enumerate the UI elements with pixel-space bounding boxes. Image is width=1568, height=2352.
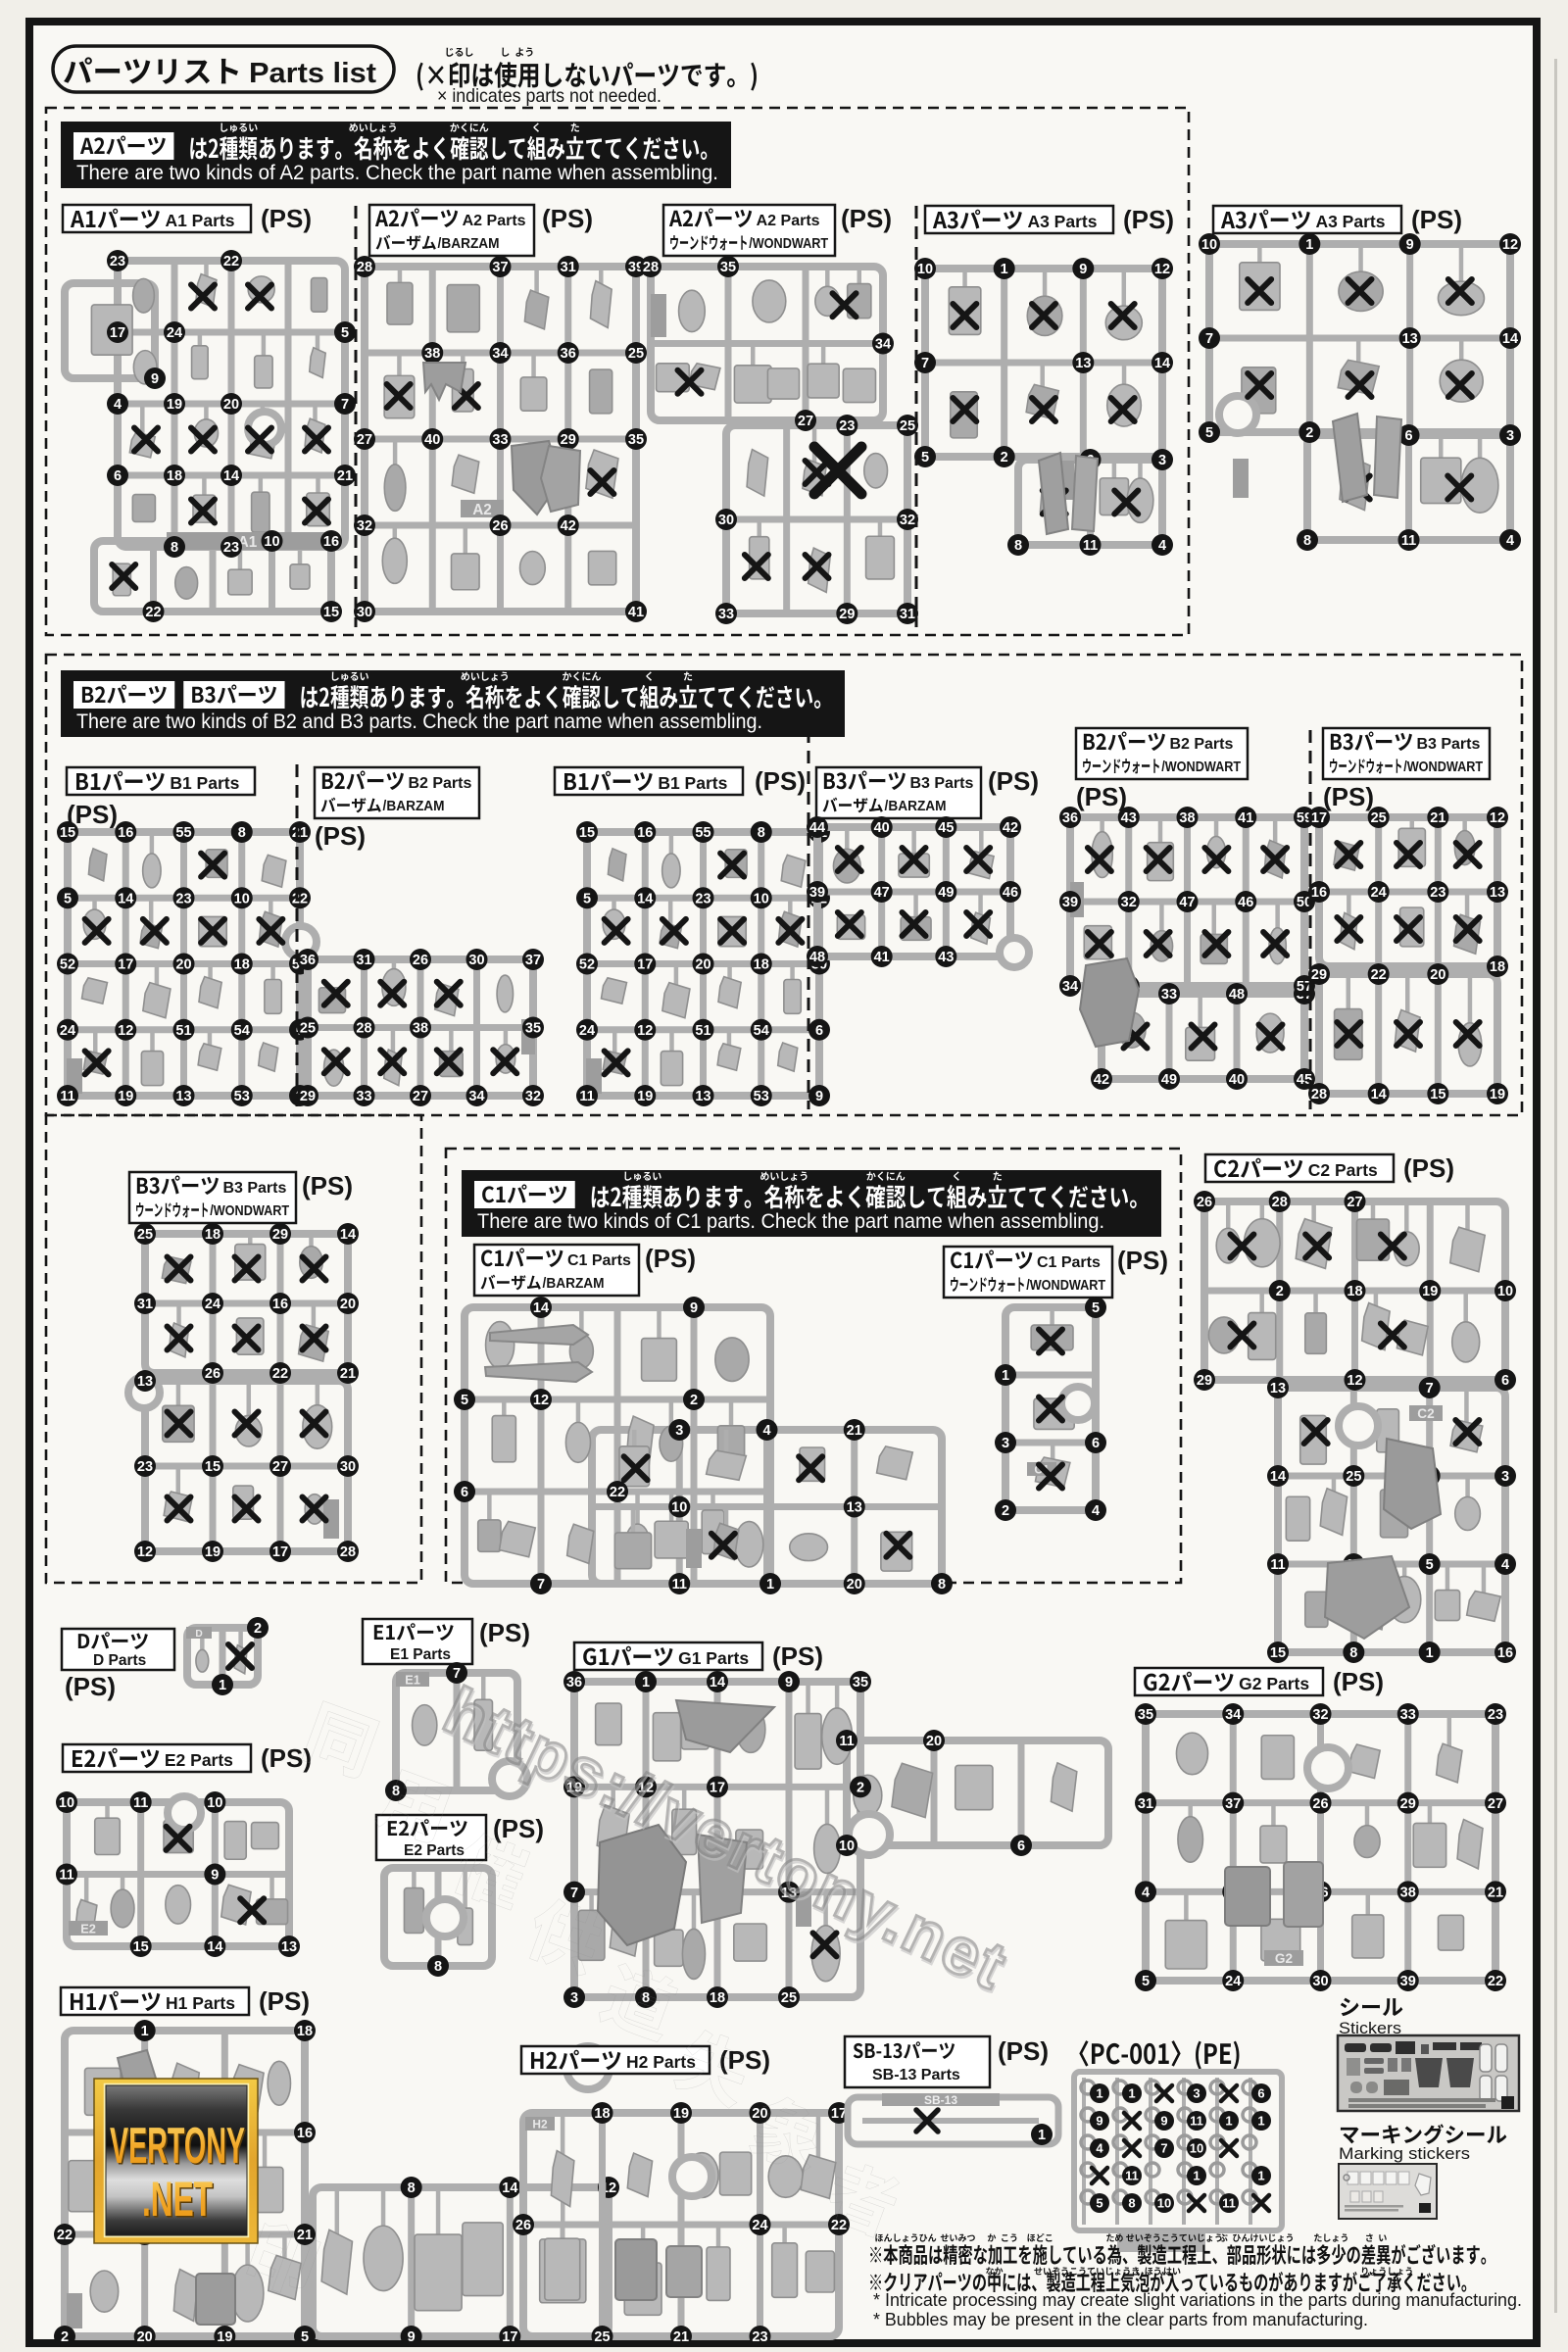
svg-text:11: 11	[133, 1795, 148, 1811]
svg-text:35: 35	[525, 1021, 541, 1037]
svg-text:7: 7	[1160, 2141, 1167, 2156]
svg-text:/WONDWART: /WONDWART	[1403, 759, 1483, 775]
svg-text:24: 24	[579, 1023, 595, 1039]
svg-text:55: 55	[175, 825, 191, 841]
svg-text:22: 22	[1371, 967, 1387, 983]
svg-text:7: 7	[537, 1577, 545, 1592]
svg-text:18: 18	[297, 2024, 313, 2039]
svg-text:22: 22	[831, 2218, 847, 2233]
svg-text:/WONDWART: /WONDWART	[1026, 1277, 1105, 1294]
svg-text:24: 24	[1371, 885, 1387, 901]
svg-text:10: 10	[207, 1795, 222, 1811]
svg-text:14: 14	[502, 2180, 517, 2196]
svg-text:10: 10	[264, 534, 279, 550]
svg-text:8: 8	[938, 1577, 946, 1592]
svg-text:29: 29	[300, 1089, 316, 1104]
svg-text:18: 18	[167, 468, 182, 484]
svg-text:9: 9	[151, 371, 159, 387]
svg-text:SB-13 Parts: SB-13 Parts	[872, 2067, 960, 2083]
svg-text:15: 15	[133, 1939, 149, 1955]
svg-text:24: 24	[167, 325, 182, 341]
svg-text:18: 18	[710, 1990, 725, 2006]
svg-text:20: 20	[752, 2106, 767, 2122]
svg-text:48: 48	[1229, 987, 1245, 1003]
svg-text:(PS): (PS)	[1323, 782, 1374, 811]
svg-text:13: 13	[847, 1500, 862, 1516]
svg-text:(PS): (PS)	[542, 204, 593, 233]
svg-text:47: 47	[1179, 895, 1195, 910]
svg-text:G1 Parts: G1 Parts	[678, 1648, 749, 1668]
svg-text:2: 2	[857, 1781, 864, 1796]
svg-text:23: 23	[137, 1459, 153, 1475]
svg-text:9: 9	[1096, 2114, 1102, 2129]
svg-text:21: 21	[297, 2228, 313, 2243]
svg-text:× indicates parts not needed.: × indicates parts not needed.	[437, 85, 661, 107]
svg-text:18: 18	[754, 957, 769, 973]
svg-text:19: 19	[1422, 1284, 1438, 1299]
svg-text:14: 14	[207, 1939, 222, 1955]
svg-text:13: 13	[1270, 1381, 1286, 1396]
svg-text:28: 28	[643, 260, 659, 275]
svg-text:1: 1	[766, 1577, 774, 1592]
svg-text:13: 13	[137, 1374, 153, 1390]
svg-text:54: 54	[754, 1023, 769, 1039]
svg-text:46: 46	[1238, 895, 1253, 910]
svg-text:31: 31	[356, 953, 371, 968]
svg-text:12: 12	[1490, 810, 1505, 826]
svg-text:41: 41	[628, 605, 644, 620]
svg-text:4: 4	[1096, 2141, 1103, 2156]
svg-text:B3 Parts: B3 Parts	[222, 1180, 286, 1197]
svg-text:19: 19	[1490, 1087, 1505, 1102]
svg-text:54: 54	[234, 1023, 250, 1039]
svg-text:48: 48	[809, 950, 825, 965]
svg-text:6: 6	[114, 468, 122, 484]
svg-text:4: 4	[1092, 1503, 1100, 1519]
svg-text:35: 35	[1138, 1707, 1153, 1723]
svg-text:13: 13	[1402, 331, 1418, 347]
svg-text:11: 11	[1401, 533, 1416, 549]
svg-text:19: 19	[217, 2329, 232, 2345]
svg-text:11: 11	[1083, 538, 1098, 554]
svg-text:34: 34	[492, 346, 508, 362]
svg-text:38: 38	[1400, 1886, 1416, 1901]
svg-text:12: 12	[118, 1023, 133, 1039]
svg-text:52: 52	[579, 957, 595, 973]
svg-text:10: 10	[59, 1795, 74, 1811]
svg-text:1: 1	[1305, 237, 1313, 253]
svg-text:/BARZAM: /BARZAM	[438, 235, 500, 252]
svg-text:36: 36	[1062, 810, 1078, 826]
svg-text:22: 22	[272, 1366, 288, 1382]
svg-text:(PS): (PS)	[1333, 1667, 1384, 1696]
svg-text:30: 30	[468, 953, 484, 968]
svg-text:28: 28	[1272, 1195, 1288, 1210]
svg-text:4: 4	[1506, 533, 1514, 549]
svg-text:/WONDWART: /WONDWART	[749, 235, 828, 252]
svg-text:6: 6	[1017, 1838, 1025, 1854]
svg-text:38: 38	[424, 346, 440, 362]
svg-text:8: 8	[434, 1959, 442, 1975]
svg-text:18: 18	[1347, 1284, 1362, 1299]
svg-text:18: 18	[594, 2106, 610, 2122]
svg-text:43: 43	[938, 950, 954, 965]
svg-text:2: 2	[1002, 1503, 1009, 1519]
svg-text:23: 23	[695, 891, 710, 906]
svg-text:E2 Parts: E2 Parts	[165, 1750, 233, 1770]
svg-text:13: 13	[1490, 885, 1505, 901]
svg-text:5: 5	[1142, 1974, 1150, 1989]
svg-text:5: 5	[1205, 425, 1213, 441]
svg-text:(PS): (PS)	[1076, 782, 1127, 811]
svg-text:7: 7	[453, 1666, 461, 1682]
svg-text:42: 42	[561, 518, 576, 534]
svg-text:49: 49	[1161, 1072, 1177, 1088]
svg-text:H2: H2	[532, 2117, 548, 2131]
svg-text:11: 11	[579, 1089, 594, 1104]
svg-text:A2 Parts: A2 Parts	[757, 213, 820, 229]
svg-text:3: 3	[1501, 1469, 1509, 1485]
svg-text:44: 44	[809, 820, 825, 836]
svg-text:34: 34	[875, 337, 891, 353]
svg-text:10: 10	[754, 891, 769, 906]
svg-text:(PS): (PS)	[719, 2045, 770, 2075]
svg-text:22: 22	[610, 1485, 625, 1500]
svg-text:9: 9	[211, 1868, 219, 1884]
svg-text:20: 20	[695, 957, 710, 973]
svg-text:13: 13	[281, 1939, 297, 1955]
svg-text:30: 30	[718, 513, 734, 528]
svg-text:32: 32	[1121, 895, 1137, 910]
svg-text:10: 10	[234, 891, 250, 906]
svg-text:15: 15	[323, 605, 339, 620]
svg-text:(PS): (PS)	[1403, 1153, 1454, 1183]
svg-text:1: 1	[1001, 262, 1008, 277]
svg-text:29: 29	[1400, 1796, 1416, 1812]
svg-text:23: 23	[839, 418, 855, 434]
svg-text:1: 1	[219, 1678, 226, 1693]
svg-text:(PS): (PS)	[302, 1171, 353, 1200]
svg-text:30: 30	[1312, 1974, 1328, 1989]
svg-text:21: 21	[1430, 810, 1445, 826]
svg-text:9: 9	[1160, 2114, 1167, 2129]
svg-text:* Bubbles may be present in th: * Bubbles may be present in the clear pa…	[873, 2310, 1368, 2329]
svg-text:22: 22	[223, 254, 239, 269]
svg-text:(PS): (PS)	[493, 1814, 544, 1843]
svg-text:B3 Parts: B3 Parts	[1416, 736, 1480, 753]
svg-text:11: 11	[839, 1734, 854, 1749]
svg-text:8: 8	[1303, 533, 1311, 549]
svg-text:37: 37	[525, 953, 541, 968]
svg-text:5: 5	[921, 450, 929, 465]
svg-text:1: 1	[642, 1675, 650, 1690]
svg-text:29: 29	[839, 607, 855, 622]
svg-text:6: 6	[1257, 2086, 1264, 2101]
svg-text:23: 23	[1430, 885, 1445, 901]
svg-text:14: 14	[637, 891, 653, 906]
svg-text:(PS): (PS)	[259, 1986, 310, 2016]
svg-text:/BARZAM: /BARZAM	[383, 798, 445, 814]
svg-text:17: 17	[502, 2329, 517, 2345]
svg-text:27: 27	[272, 1459, 288, 1475]
svg-text:3: 3	[1158, 453, 1166, 468]
svg-text:24: 24	[60, 1023, 75, 1039]
svg-text:There are two kinds of C1 part: There are two kinds of C1 parts. Check t…	[477, 1210, 1104, 1233]
svg-text:E2 Parts: E2 Parts	[404, 1842, 465, 1859]
svg-text:20: 20	[340, 1297, 356, 1312]
svg-text:16: 16	[1311, 885, 1327, 901]
svg-text:27: 27	[798, 414, 813, 429]
svg-text:40: 40	[1229, 1072, 1245, 1088]
svg-text:21: 21	[673, 2329, 689, 2345]
svg-text:3: 3	[675, 1423, 683, 1439]
svg-text:14: 14	[533, 1300, 549, 1316]
svg-text:2: 2	[1276, 1284, 1284, 1299]
svg-text:11: 11	[1270, 1557, 1285, 1573]
svg-text:11: 11	[59, 1868, 73, 1884]
svg-text:15: 15	[1270, 1645, 1286, 1661]
svg-text:8: 8	[171, 540, 178, 556]
svg-text:7: 7	[570, 1886, 578, 1901]
svg-text:30: 30	[357, 605, 372, 620]
svg-text:(PS): (PS)	[645, 1244, 696, 1273]
svg-text:23: 23	[752, 2329, 767, 2345]
svg-text:33: 33	[356, 1089, 371, 1104]
svg-text:8: 8	[642, 1990, 650, 2006]
svg-text:20: 20	[137, 2329, 153, 2345]
svg-text:15: 15	[60, 825, 75, 841]
svg-text:14: 14	[1154, 356, 1170, 371]
svg-text:3: 3	[1506, 428, 1514, 444]
svg-text:16: 16	[272, 1297, 288, 1312]
svg-text:18: 18	[205, 1227, 220, 1243]
svg-text:32: 32	[900, 513, 915, 528]
svg-text:12: 12	[1154, 262, 1170, 277]
svg-text:30: 30	[340, 1459, 356, 1475]
svg-text:7: 7	[1426, 1381, 1434, 1396]
svg-text:There are two kinds of B2 and: There are two kinds of B2 and B3 parts. …	[76, 710, 762, 733]
svg-text:10: 10	[917, 262, 933, 277]
svg-text:16: 16	[297, 2126, 313, 2141]
svg-text:16: 16	[118, 825, 133, 841]
svg-text:(PS): (PS)	[1117, 1246, 1168, 1275]
svg-text:* Intricate processing may cre: * Intricate processing may create slight…	[873, 2290, 1522, 2310]
svg-text:8: 8	[1014, 538, 1022, 554]
svg-text:26: 26	[515, 2218, 531, 2233]
svg-text:19: 19	[205, 1544, 220, 1560]
svg-text:53: 53	[234, 1089, 250, 1104]
svg-text:25: 25	[900, 418, 915, 434]
svg-text:12: 12	[637, 1023, 653, 1039]
svg-text:28: 28	[1311, 1087, 1327, 1102]
svg-text:3: 3	[1002, 1436, 1009, 1451]
svg-text:39: 39	[1400, 1974, 1416, 1989]
svg-text:(PS): (PS)	[988, 766, 1039, 796]
svg-text:36: 36	[566, 1675, 582, 1690]
svg-text:32: 32	[357, 518, 372, 534]
svg-text:4: 4	[1501, 1557, 1509, 1573]
svg-text:26: 26	[413, 953, 428, 968]
svg-text:Parts list: Parts list	[249, 58, 376, 89]
svg-text:18: 18	[1490, 959, 1505, 975]
svg-text:19: 19	[167, 397, 182, 413]
svg-text:11: 11	[1125, 2169, 1139, 2183]
svg-text:28: 28	[356, 1021, 371, 1037]
svg-text:E2: E2	[80, 1921, 96, 1935]
svg-text:(PS): (PS)	[261, 1743, 312, 1773]
svg-text:4: 4	[762, 1423, 770, 1439]
svg-text:8: 8	[392, 1784, 400, 1799]
svg-text:/WONDWART: /WONDWART	[210, 1202, 289, 1219]
svg-text:16: 16	[1497, 1645, 1513, 1661]
svg-text:7: 7	[1205, 331, 1213, 347]
svg-text:55: 55	[695, 825, 710, 841]
svg-text:19: 19	[637, 1089, 653, 1104]
svg-text:B2 Parts: B2 Parts	[1169, 736, 1233, 753]
svg-text:10: 10	[1190, 2141, 1203, 2156]
svg-text:42: 42	[1094, 1072, 1109, 1088]
svg-text:16: 16	[323, 534, 339, 550]
svg-text:23: 23	[110, 254, 125, 269]
svg-text:47: 47	[874, 885, 890, 901]
svg-text:SB-13: SB-13	[924, 2093, 957, 2107]
svg-text:There are two kinds of A2 part: There are two kinds of A2 parts. Check t…	[76, 162, 718, 184]
svg-text:/BARZAM: /BARZAM	[543, 1275, 605, 1292]
svg-text:33: 33	[1400, 1707, 1416, 1723]
svg-text:21: 21	[1488, 1886, 1503, 1901]
svg-text:6: 6	[1092, 1436, 1100, 1451]
svg-text:22: 22	[145, 605, 161, 620]
svg-text:27: 27	[357, 432, 372, 448]
svg-text:34: 34	[1225, 1707, 1241, 1723]
svg-text:1: 1	[1257, 2169, 1264, 2183]
svg-text:(PS): (PS)	[772, 1641, 823, 1671]
svg-text:4: 4	[114, 397, 122, 413]
svg-text:29: 29	[1311, 967, 1327, 983]
svg-text:25: 25	[300, 1021, 316, 1037]
svg-text:25: 25	[1346, 1469, 1361, 1485]
svg-text:31: 31	[561, 260, 576, 275]
svg-text:32: 32	[1312, 1707, 1328, 1723]
svg-text:4: 4	[1142, 1886, 1150, 1901]
svg-text:5: 5	[301, 2329, 309, 2345]
svg-text:20: 20	[1430, 967, 1445, 983]
svg-text:15: 15	[205, 1459, 220, 1475]
svg-text:19: 19	[673, 2106, 689, 2122]
svg-text:19: 19	[118, 1089, 133, 1104]
svg-text:2: 2	[1305, 425, 1313, 441]
svg-text:9: 9	[815, 1089, 823, 1104]
svg-text:C2 Parts: C2 Parts	[1308, 1160, 1378, 1180]
svg-text:1: 1	[1193, 2169, 1200, 2183]
svg-text:9: 9	[690, 1300, 698, 1316]
svg-text:A3 Parts: A3 Parts	[1315, 212, 1385, 231]
svg-text:31: 31	[137, 1297, 153, 1312]
svg-text:1: 1	[1257, 2114, 1264, 2129]
svg-text:8: 8	[1128, 2196, 1135, 2211]
svg-text:11: 11	[60, 1089, 74, 1104]
svg-text:20: 20	[223, 397, 239, 413]
svg-text:14: 14	[710, 1675, 725, 1690]
svg-text:/WONDWART: /WONDWART	[1161, 759, 1241, 775]
svg-text:C1 Parts: C1 Parts	[1037, 1254, 1101, 1271]
svg-text:46: 46	[1003, 885, 1018, 901]
svg-text:.NET: .NET	[142, 2172, 213, 2227]
svg-text:9: 9	[785, 1675, 793, 1690]
svg-text:5: 5	[583, 891, 591, 906]
svg-text:9: 9	[1079, 262, 1087, 277]
svg-text:(PS): (PS)	[65, 1672, 116, 1701]
svg-text:12: 12	[1502, 237, 1518, 253]
svg-text:27: 27	[1488, 1796, 1503, 1812]
svg-text:2: 2	[1001, 450, 1008, 465]
svg-text:1: 1	[1096, 2086, 1102, 2101]
svg-text:13: 13	[695, 1089, 710, 1104]
svg-text:14: 14	[340, 1227, 356, 1243]
svg-text:14: 14	[1270, 1469, 1286, 1485]
svg-text:5: 5	[1092, 1300, 1100, 1316]
svg-text:1: 1	[1038, 2128, 1046, 2143]
svg-text:A2: A2	[472, 502, 492, 518]
svg-text:26: 26	[492, 518, 508, 534]
svg-text:35: 35	[720, 260, 736, 275]
svg-text:2: 2	[61, 2329, 69, 2345]
svg-text:49: 49	[938, 885, 954, 901]
svg-text:31: 31	[900, 607, 915, 622]
svg-text:51: 51	[695, 1023, 710, 1039]
svg-text:52: 52	[60, 957, 75, 973]
svg-text:14: 14	[118, 891, 133, 906]
svg-text:36: 36	[300, 953, 316, 968]
svg-text:51: 51	[175, 1023, 191, 1039]
svg-text:21: 21	[847, 1423, 862, 1439]
svg-text:14: 14	[1371, 1087, 1387, 1102]
svg-text:11: 11	[1190, 2114, 1203, 2129]
svg-text:6: 6	[815, 1023, 823, 1039]
svg-text:13: 13	[175, 1089, 191, 1104]
svg-text:3: 3	[570, 1990, 578, 2006]
svg-text:16: 16	[637, 825, 653, 841]
svg-text:31: 31	[1138, 1796, 1153, 1812]
svg-text:25: 25	[594, 2329, 610, 2345]
svg-text:33: 33	[1161, 987, 1177, 1003]
svg-text:5: 5	[461, 1393, 468, 1408]
svg-text:43: 43	[1121, 810, 1137, 826]
svg-text:41: 41	[1238, 810, 1253, 826]
svg-text:29: 29	[561, 432, 576, 448]
svg-text:B2 Parts: B2 Parts	[408, 775, 471, 792]
svg-text:8: 8	[758, 825, 765, 841]
svg-text:1: 1	[1002, 1368, 1009, 1384]
svg-text:H1 Parts: H1 Parts	[166, 1993, 235, 2013]
svg-text:5: 5	[1426, 1557, 1434, 1573]
svg-text:17: 17	[110, 325, 125, 341]
svg-text:H2 Parts: H2 Parts	[626, 2052, 696, 2072]
svg-text:37: 37	[492, 260, 508, 275]
svg-text:A1 Parts: A1 Parts	[165, 211, 234, 230]
svg-text:45: 45	[938, 820, 954, 836]
svg-text:26: 26	[205, 1366, 220, 1382]
svg-text:32: 32	[525, 1089, 541, 1104]
svg-text:B1 Parts: B1 Parts	[658, 773, 727, 793]
svg-text:E1: E1	[405, 1672, 420, 1687]
svg-text:34: 34	[1062, 979, 1078, 995]
svg-text:25: 25	[628, 346, 644, 362]
svg-text:27: 27	[413, 1089, 428, 1104]
svg-text:(PS): (PS)	[841, 204, 892, 233]
svg-text:7: 7	[341, 397, 349, 413]
svg-text:E1 Parts: E1 Parts	[390, 1646, 451, 1663]
